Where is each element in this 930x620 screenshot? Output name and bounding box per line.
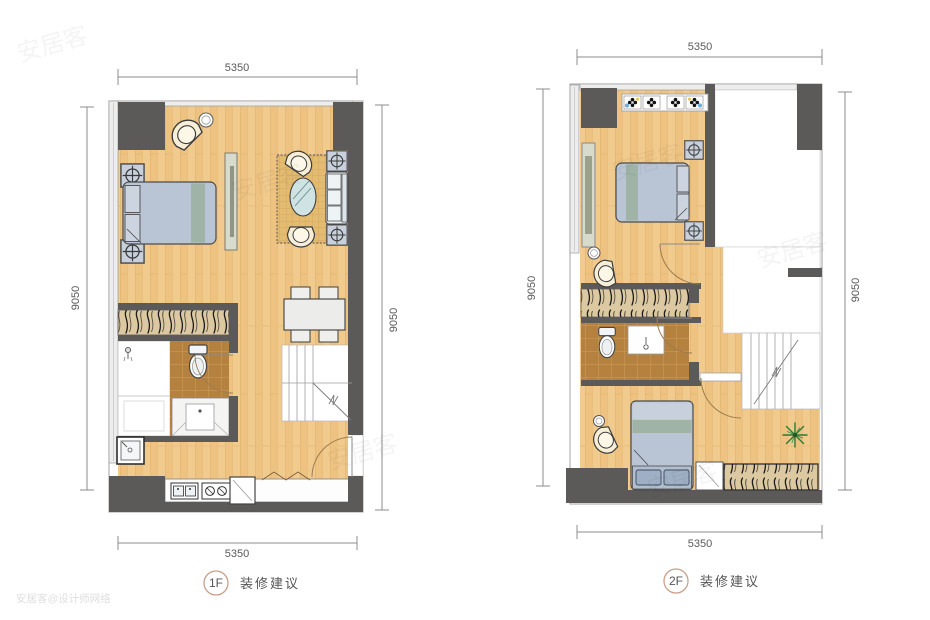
side-table-lamp-icon-1f-a [327, 151, 347, 171]
watermark-ghost: 安居客 [14, 22, 91, 68]
watermark-credit: 安居客@设计师网络 [16, 592, 111, 605]
dimension-label-bottom-1f: 5350 [225, 548, 249, 560]
wardrobe-icon-2f-mid [581, 289, 689, 317]
dimension-label-right-1f: 9050 [388, 308, 400, 332]
floor-badge-2f: 2F [669, 574, 683, 588]
dimension-label-top-1f: 5350 [225, 62, 249, 74]
stool-icon-2f-a [588, 247, 600, 259]
floor-label-2f: 2F 装修建议 [664, 569, 760, 593]
dimension-left-1f: 9050 [70, 107, 94, 490]
floor-plan-1f: 5350 9050 9050 5350 [70, 62, 400, 560]
kitchen-sink-icon-1f [171, 483, 198, 499]
dimension-label-left-2f: 9050 [526, 276, 538, 300]
dimension-bottom-2f: 5350 [577, 525, 822, 550]
bed-icon-1f [123, 182, 216, 244]
fridge-icon-1f [230, 477, 255, 504]
sofa-icon-1f [326, 172, 348, 224]
dimension-label-left-1f: 9050 [70, 286, 82, 310]
nightstand-lamp-icon-2f-b [685, 222, 704, 241]
dimension-right-2f: 9050 [838, 92, 862, 490]
laundry-sink-icon-1f [117, 437, 144, 464]
side-table-lamp-icon-1f-b [327, 225, 347, 245]
dimension-bottom-1f: 5350 [118, 536, 357, 560]
wardrobe-icon-2f-bottom [724, 464, 818, 490]
stove-icon-1f [202, 483, 230, 499]
dimension-label-right-2f: 9050 [850, 278, 862, 302]
plant-icon-2f [783, 423, 807, 447]
shower-area-1f [118, 341, 170, 436]
floor-badge-1f: 1F [209, 576, 223, 590]
nightstand-lamp-icon-2f-a [685, 141, 704, 160]
stool-icon-2f-b [594, 416, 605, 427]
floor-label-1f: 1F 装修建议 [204, 571, 300, 595]
cabinet-icon-2f-bedroom [582, 143, 595, 247]
dimension-left-2f: 9050 [526, 89, 550, 486]
wardrobe-icon-1f [118, 310, 229, 335]
floorplan-canvas: 5350 9050 9050 5350 [0, 0, 930, 620]
floorplan-page: 5350 9050 9050 5350 [0, 0, 930, 620]
dimension-top-1f: 5350 [118, 62, 357, 85]
stairs-2f [742, 333, 820, 409]
dimension-label-top-2f: 5350 [688, 41, 712, 53]
toilet-icon-1f [189, 345, 207, 378]
dimension-label-bottom-2f: 5350 [688, 538, 712, 550]
door-leaf-2f [700, 373, 741, 381]
toilet-icon-2f [599, 327, 616, 357]
floor-label-text-2f: 装修建议 [700, 574, 760, 589]
dimension-top-2f: 5350 [577, 41, 822, 65]
shelf-plants-icon-2f [622, 94, 708, 111]
side-table-icon [199, 113, 213, 127]
floor-label-text-1f: 装修建议 [240, 576, 300, 591]
armchair-icon-1f-living-bottom [288, 227, 315, 247]
